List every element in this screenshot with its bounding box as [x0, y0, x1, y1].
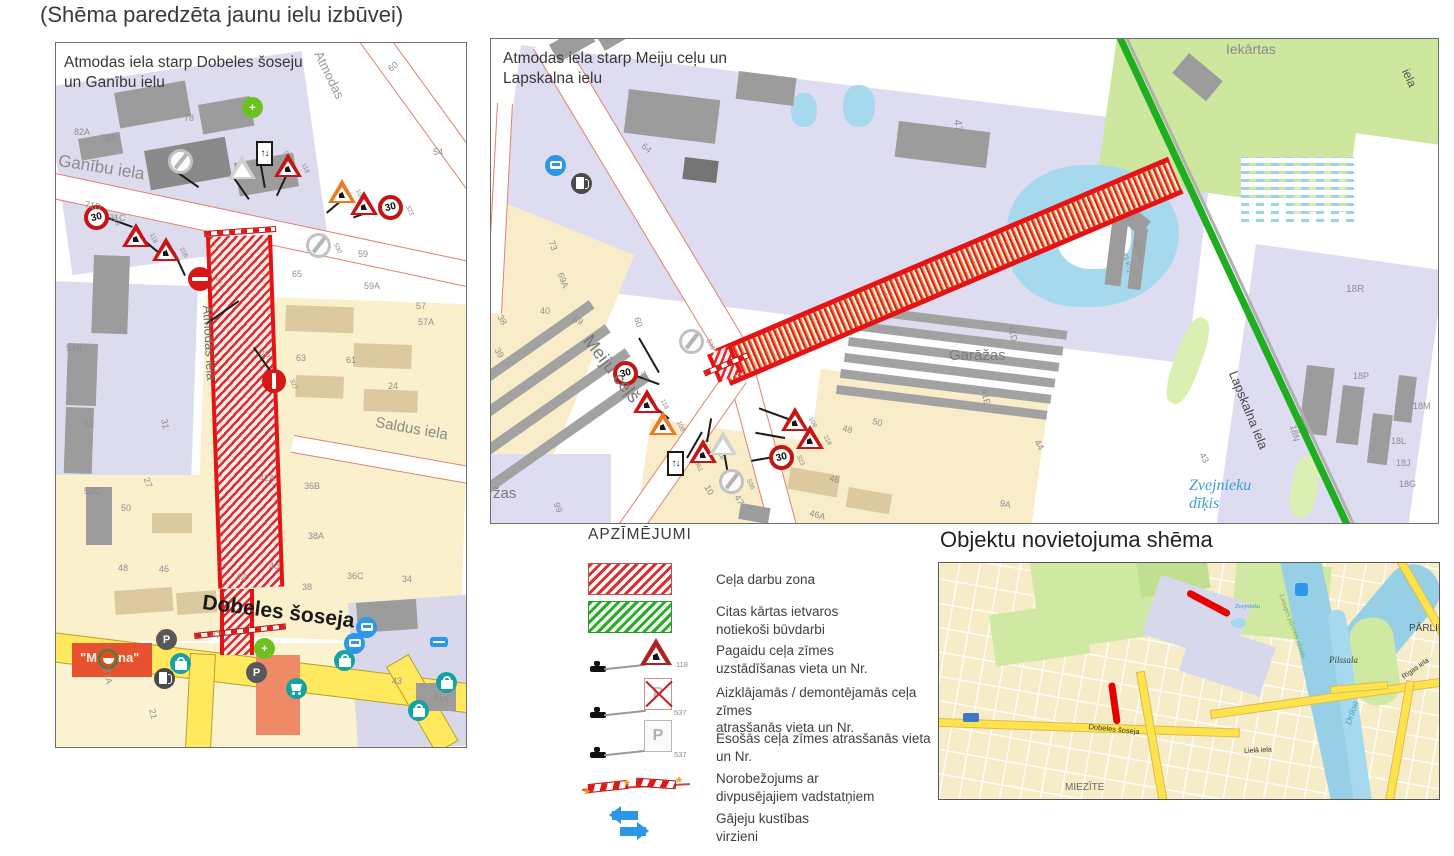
overview-shapes-layer	[939, 563, 1439, 799]
bus-poi-icon	[545, 155, 566, 176]
bag-poi-icon	[170, 653, 191, 674]
legend-label: Citas kārtas ietvaros notiekoši būvdarbi	[716, 603, 838, 638]
s30-sign-icon: 30	[769, 445, 794, 470]
map-label: 59	[358, 249, 368, 259]
legend-title: APZĪMĒJUMI	[588, 526, 692, 544]
overview-map-panel: PĀRLIEPilssalaMIEZĪTEDriksaDobeles šosej…	[938, 562, 1440, 800]
map-label: 82A	[74, 127, 90, 137]
p-poi-icon: P	[156, 629, 177, 650]
map-label: 78	[184, 113, 194, 123]
store-banner-label: "M	[80, 651, 97, 666]
map-label: 57A	[418, 317, 434, 327]
pharm-poi-icon: +	[242, 97, 263, 118]
water	[843, 85, 875, 127]
fuel-poi-icon	[571, 173, 592, 194]
pharm-poi-icon: +	[254, 638, 275, 659]
existing-sign-icon: P	[644, 720, 672, 752]
sign-pole-icon	[588, 698, 646, 720]
building	[285, 305, 354, 333]
map-label: 42	[236, 572, 246, 582]
map-label: 38	[302, 582, 312, 592]
legend-item-other-phase: Citas kārtas ietvaros notiekoši būvdarbi	[588, 601, 948, 643]
store-banner-label: na"	[118, 651, 139, 666]
map-label: 47	[950, 119, 964, 132]
map-label: 63	[296, 353, 306, 363]
map-label: 31	[159, 418, 171, 430]
map-label: 40	[269, 561, 279, 571]
cart-poi-icon	[286, 678, 307, 699]
legend-label: Norobežojums ar divpusējajiem vadstatņie…	[716, 770, 874, 805]
bus-poi-icon	[344, 633, 365, 654]
map-label: 59A	[364, 281, 380, 291]
barrier-icon: ***	[588, 774, 688, 800]
noentry-sign-icon	[188, 267, 212, 291]
area-label-miezite: MIEZĪTE	[1065, 782, 1104, 794]
map-label: 36C	[347, 571, 364, 581]
map-label: 21	[147, 708, 159, 720]
map-label: 46	[159, 564, 169, 574]
map-label: 48	[118, 563, 128, 573]
building	[114, 587, 174, 615]
sign-number: 118	[676, 660, 688, 669]
building	[64, 407, 94, 474]
gray-sign-icon	[306, 233, 331, 258]
area-label-parlielupe: PĀRLIE	[1409, 623, 1440, 635]
map-label: 50	[121, 503, 131, 513]
bag-poi-icon	[436, 672, 457, 693]
rect-sign-icon: ↑↓	[256, 141, 273, 166]
work-zone-swatch-icon	[588, 563, 672, 595]
map-label: 9A	[999, 498, 1012, 510]
map-label: 54B	[66, 343, 82, 353]
map-label: 26	[260, 349, 270, 359]
rect-sign-icon: ↑↓	[667, 451, 684, 476]
map-label: 18M	[1413, 401, 1431, 411]
map-label: 61	[346, 355, 356, 365]
map-label: 43	[392, 676, 402, 686]
area-label-iekartas: Iekārtas	[1226, 41, 1276, 57]
street-label-atmodas: Atmodas iela	[199, 305, 218, 381]
fuel-poi-icon	[154, 668, 175, 689]
sign-number: 537	[674, 750, 687, 759]
other-phase-swatch-icon	[588, 601, 672, 633]
nostopv-sign-icon	[262, 369, 286, 393]
map-label: 71C	[109, 213, 126, 223]
overview-title: Objektu novietojuma shēma	[940, 527, 1213, 553]
water-label-zvejnieku-ov: Zvejnieku	[1235, 603, 1260, 610]
water	[791, 93, 817, 127]
map-label: 42A	[259, 473, 275, 483]
map-label: 24	[388, 381, 398, 391]
legend-item-work-zone: Ceļa darbu zona	[588, 563, 948, 605]
gray-sign-icon	[679, 329, 704, 354]
map-label: 47	[210, 629, 222, 641]
pedestrian-arrows-icon	[598, 808, 668, 842]
legend-item-temporary-sign: 118 Pagaidu ceļa zīmes uzstādīšanas viet…	[588, 640, 948, 682]
water	[1231, 618, 1246, 628]
map-label: 18J	[1396, 458, 1411, 468]
street-label-liela: Lielā iela	[1244, 747, 1272, 756]
store-poi-icon	[98, 649, 118, 669]
map-label: 18R	[1346, 284, 1364, 296]
map-label: 78A	[100, 133, 116, 143]
legend-item-pedestrian-directions: Gājeju kustības virzieni	[588, 808, 948, 850]
sign-pole-icon	[588, 738, 646, 760]
area-label-garazas-2: žas	[493, 485, 516, 502]
gray-sign-icon	[719, 469, 744, 494]
building	[295, 375, 344, 399]
building	[91, 255, 130, 334]
legend: APZĪMĒJUMI Ceļa darbu zona Citas kārtas …	[560, 524, 950, 856]
area-label-garazas: Garāžas	[949, 347, 1006, 364]
map-label: 52C	[84, 486, 101, 496]
bag-poi-icon	[408, 700, 429, 721]
sign-number: 537	[674, 708, 687, 717]
map-label: 18P	[1353, 371, 1369, 381]
map-label: 40	[540, 306, 550, 316]
map-label: 34	[402, 574, 412, 584]
map-label: 18L	[1391, 436, 1406, 446]
water-label-zvejnieku: Zvejnieku dīķis	[1189, 477, 1251, 514]
s30-sign-icon: 30	[378, 195, 403, 220]
map-label: 57	[416, 301, 426, 311]
legend-item-barrier: *** Norobežojums ar divpusējajiem vadsta…	[588, 768, 948, 810]
gray-sign-icon	[168, 149, 193, 174]
zone	[55, 475, 208, 641]
map-label: 54	[433, 147, 443, 157]
dash-poi-icon	[430, 637, 448, 647]
map-label: 65	[292, 269, 302, 279]
map-label: 18G	[1399, 479, 1416, 489]
legend-item-existing-sign: P 537 Esošās ceļa zīmes atrasšanās vieta…	[588, 724, 948, 766]
map-label: 52	[84, 419, 94, 429]
legend-label: Pagaidu ceļa zīmes uzstādīšanas vieta un…	[716, 642, 868, 677]
road-shield-icon	[1295, 583, 1308, 596]
map-panel-left: Ganību ielaAtmodasAtmodas ielaDobeles šo…	[55, 42, 467, 748]
map-left-title: Atmodas iela starp Dobeles šoseju un Gan…	[64, 53, 303, 93]
map-right-title: Atmodas iela starp Meiju ceļu un Lapskal…	[503, 49, 727, 89]
building	[152, 513, 192, 533]
map-panel-right: Meiju ceļšIekārtasGarāžasžasZvejnieku dī…	[490, 38, 1439, 524]
wetland	[1241, 157, 1355, 227]
legend-item-covered-sign: P 537 Aizklājamās / demontējamās ceļa zī…	[588, 682, 948, 724]
legend-label: Esošās ceļa zīmes atrasšanās vieta un Nr…	[716, 730, 948, 765]
area-label-pilssala: Pilssala	[1329, 655, 1358, 665]
building	[353, 343, 412, 369]
p-poi-icon: P	[246, 662, 267, 683]
sign-pole-icon	[588, 652, 646, 674]
map-label: 36B	[304, 481, 320, 491]
building	[682, 157, 718, 183]
crossed-sign-icon: P	[644, 678, 672, 710]
page-title: (Shēma paredzēta jaunu ielu izbūvei)	[40, 2, 403, 28]
legend-label: Gājeju kustības virzieni	[716, 810, 809, 845]
zone	[1318, 38, 1439, 146]
legend-label: Ceļa darbu zona	[716, 571, 815, 589]
road-shield-icon	[963, 713, 979, 722]
building	[363, 389, 418, 413]
map-label: 38A	[308, 531, 324, 541]
